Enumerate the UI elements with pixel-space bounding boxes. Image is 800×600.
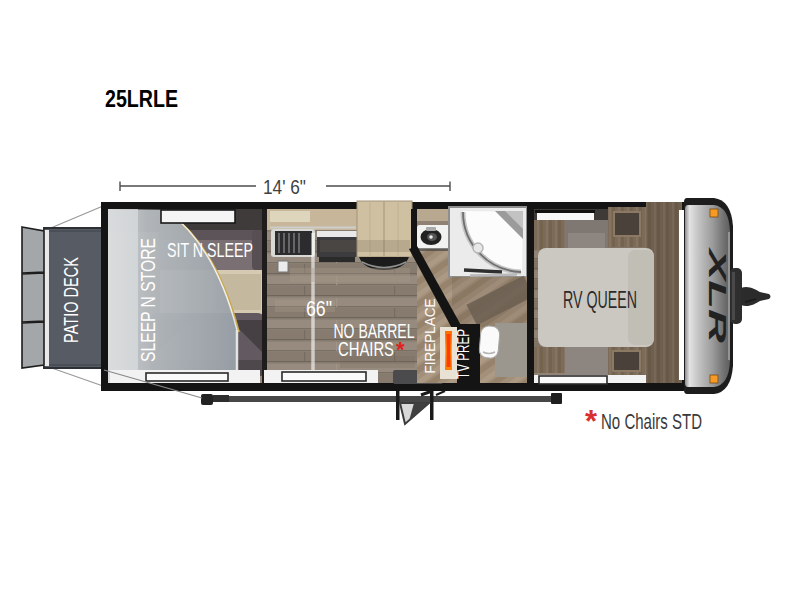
svg-text:SIT N SLEEP: SIT N SLEEP <box>167 238 253 261</box>
svg-text:FIREPLACE: FIREPLACE <box>421 299 438 374</box>
svg-text:RV QUEEN: RV QUEEN <box>563 286 637 313</box>
svg-text:*: * <box>585 404 598 439</box>
svg-text:TV PREP: TV PREP <box>455 329 472 379</box>
svg-text:PATIO DECK: PATIO DECK <box>60 257 82 343</box>
svg-text:CHAIRS: CHAIRS <box>338 337 394 360</box>
svg-text:XLR: XLR <box>704 245 731 344</box>
svg-text:14' 6": 14' 6" <box>263 175 306 198</box>
svg-text:No Chairs STD: No Chairs STD <box>601 409 702 434</box>
svg-text:66": 66" <box>306 296 332 321</box>
svg-text:*: * <box>396 337 405 362</box>
svg-text:SLEEP N STORE: SLEEP N STORE <box>136 238 159 362</box>
svg-text:25LRLE: 25LRLE <box>105 86 178 112</box>
